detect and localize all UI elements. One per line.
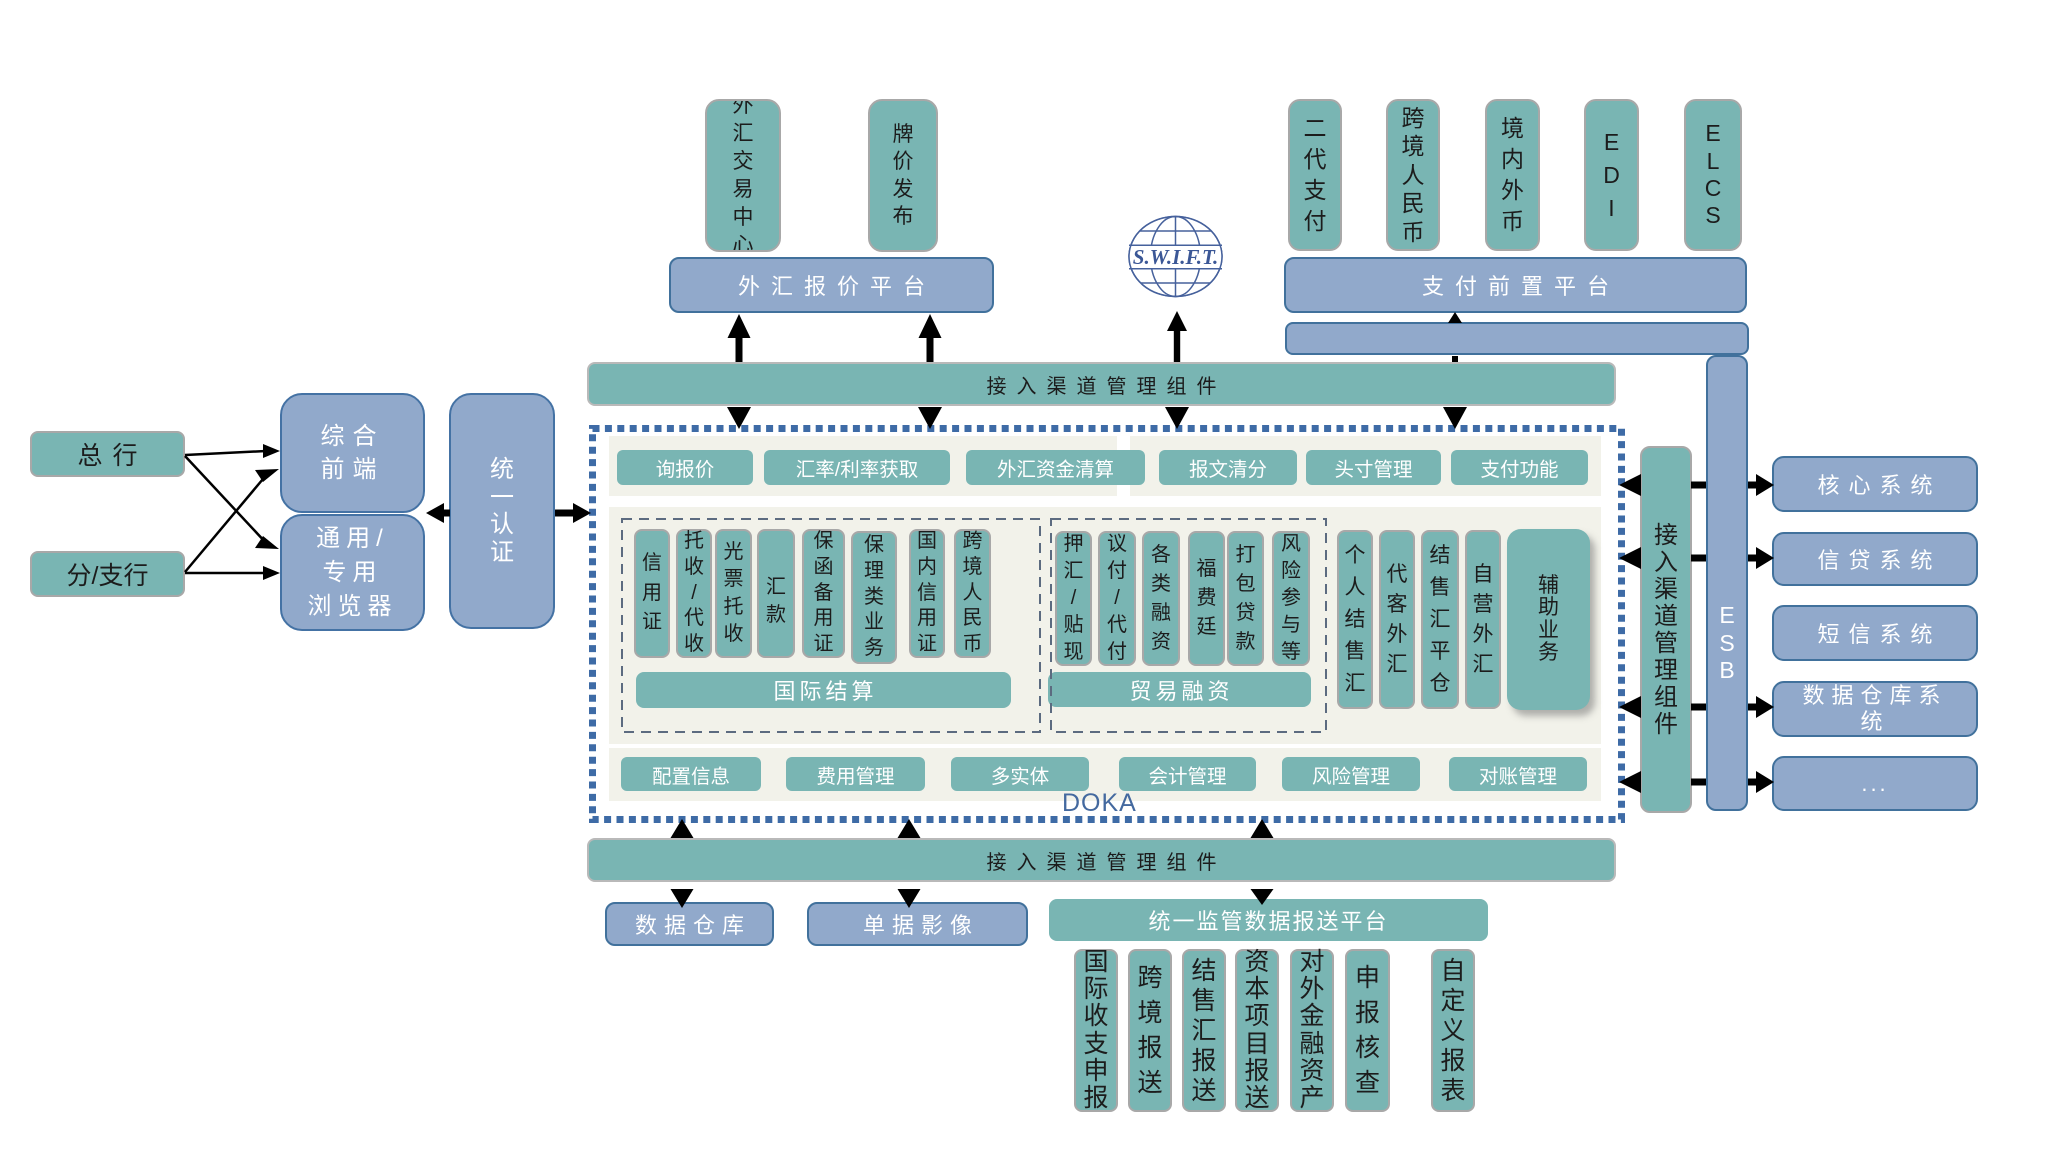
svg-text:S.W.I.F.T.: S.W.I.F.T. — [1133, 245, 1218, 269]
